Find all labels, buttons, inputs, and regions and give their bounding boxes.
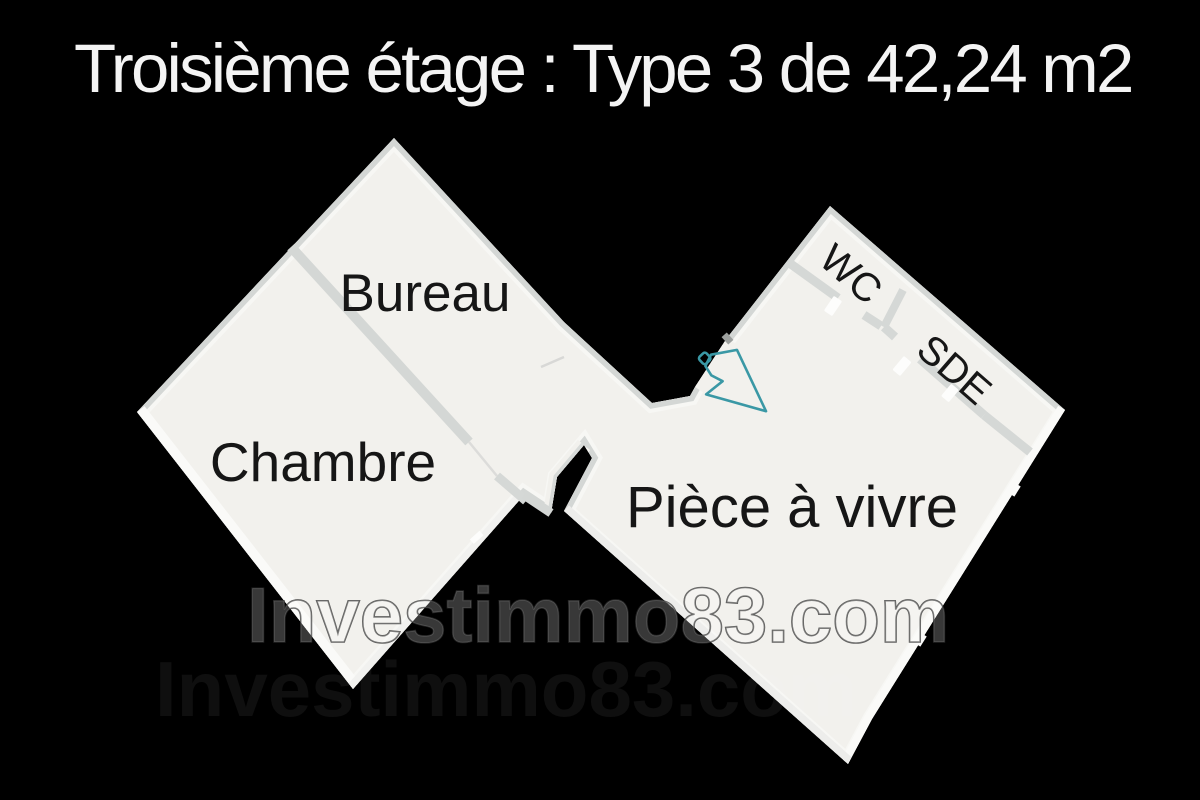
svg-text:Chambre: Chambre (210, 431, 436, 493)
svg-text:Investimmo83.com: Investimmo83.com (155, 645, 857, 733)
svg-text:Bureau: Bureau (340, 264, 511, 323)
svg-text:Troisième étage : Type 3 de 42: Troisième étage : Type 3 de 42,24 m2 (74, 30, 1132, 107)
svg-text:Pièce à vivre: Pièce à vivre (626, 475, 958, 540)
